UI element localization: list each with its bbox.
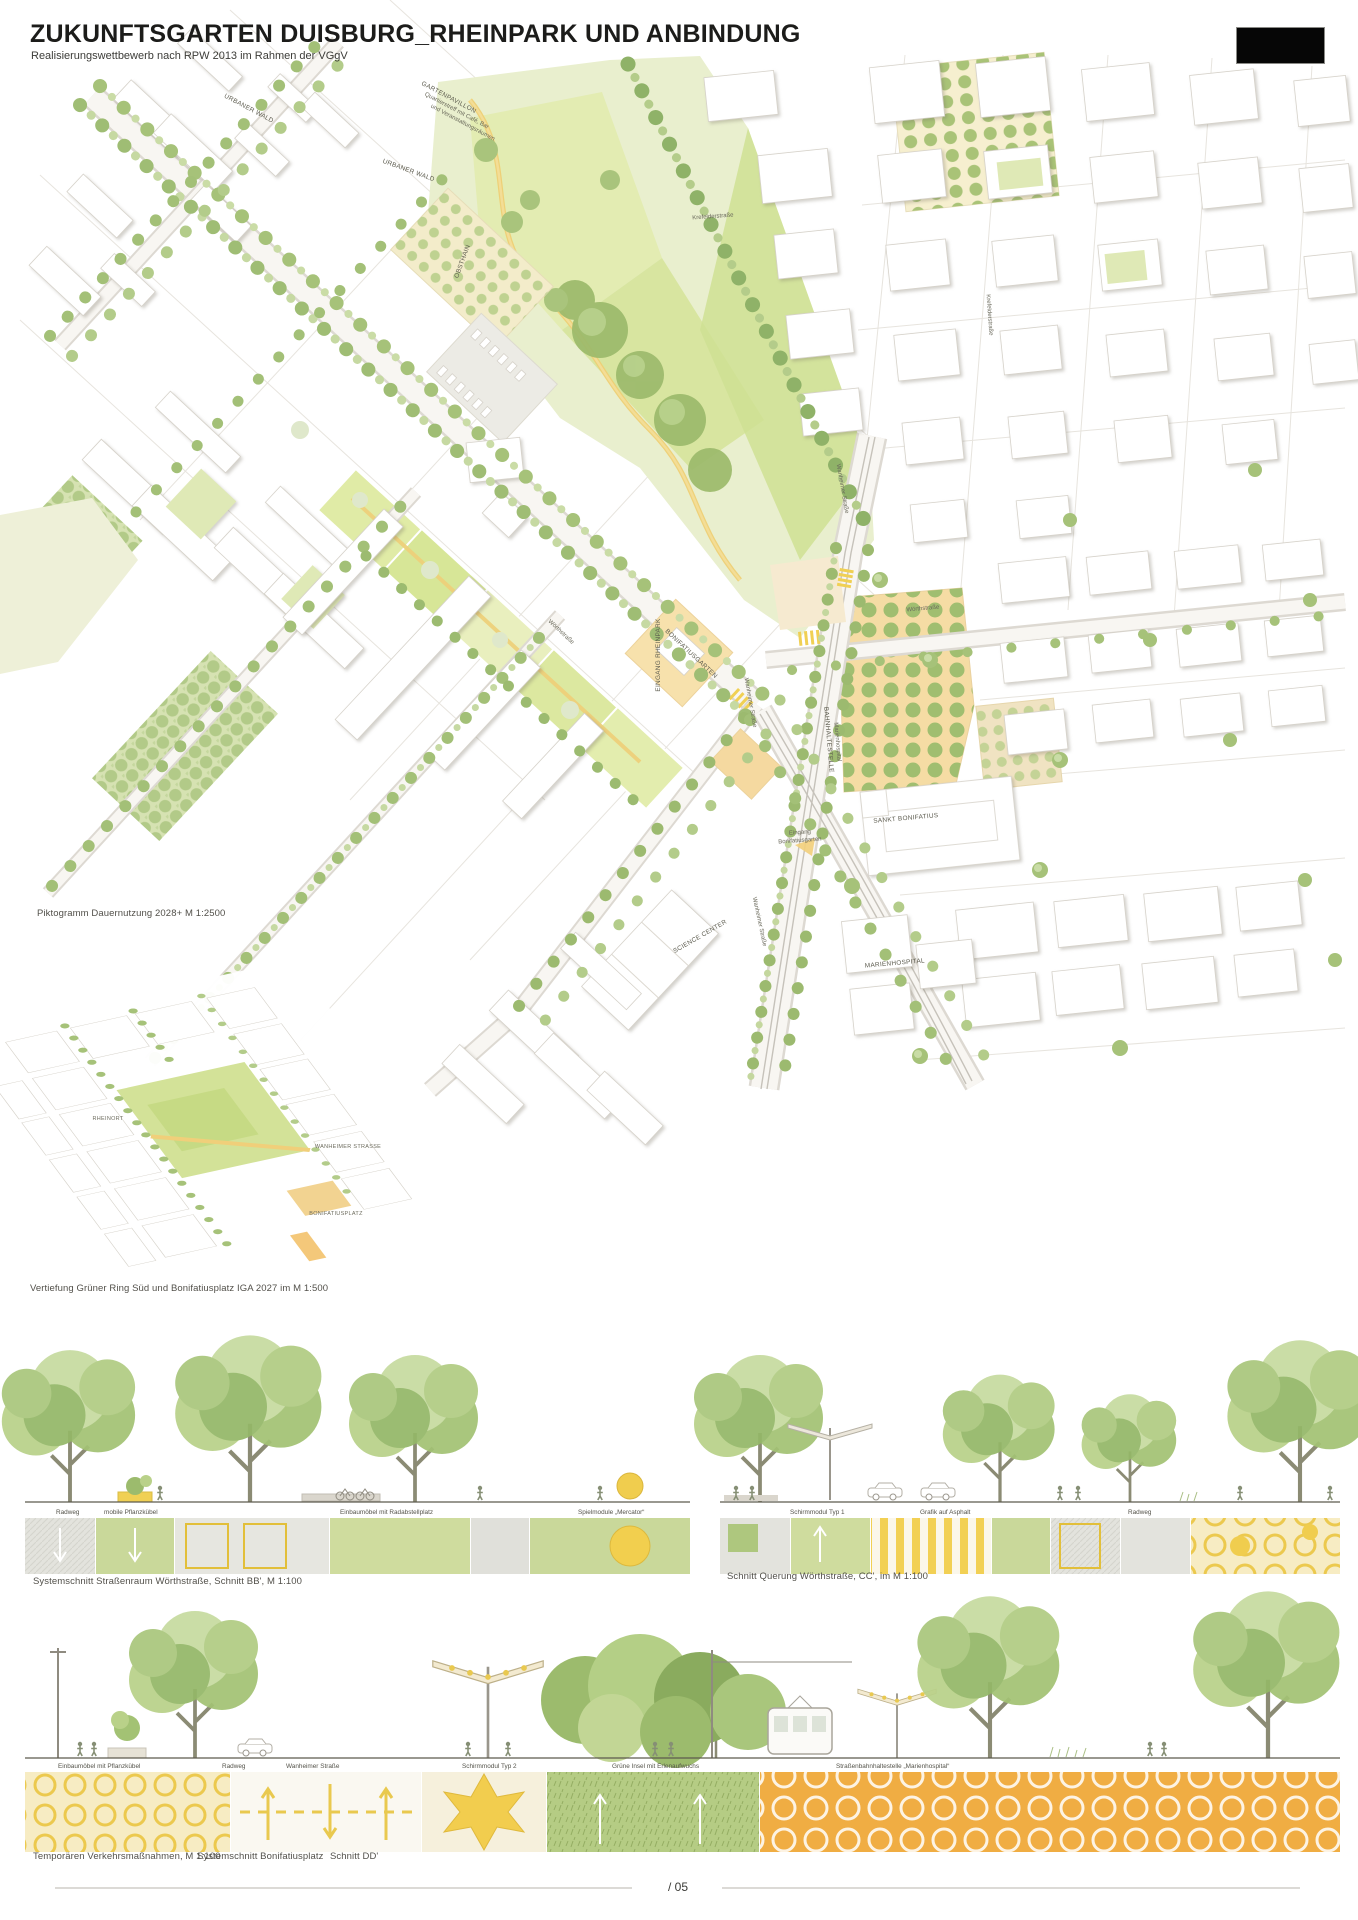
- section-label: Radweg: [1128, 1509, 1152, 1516]
- section-label: Grafik auf Asphalt: [920, 1509, 971, 1516]
- caption-schnitt-dd: Schnitt DD': [330, 1851, 378, 1862]
- landmark-buildings: [442, 776, 1020, 1145]
- section1-labels: Radweg mobile Pflanzkübel Einbaumöbel mi…: [56, 1509, 1152, 1516]
- sankt-bonifatius-church: [860, 776, 1020, 875]
- planter-box: [108, 1748, 146, 1758]
- section-band-2: Einbaumöbel mit Pflanzkübel Radweg Wanhe…: [25, 1591, 1340, 1852]
- section-label: Spielmodule „Mercator“: [578, 1509, 644, 1516]
- page-subtitle: Realisierungswettbewerb nach RPW 2013 im…: [31, 50, 348, 62]
- section2-labels: Einbaumöbel mit Pflanzkübel Radweg Wanhe…: [58, 1763, 949, 1770]
- page-number: / 05: [638, 1880, 718, 1894]
- caption-bonifatiusplatz: Systemschnitt Bonifatiusplatz: [197, 1851, 323, 1862]
- grasses: [1180, 1492, 1197, 1501]
- subsurface-cc: [720, 1518, 1340, 1574]
- section-label: Einbaumöbel mit Pflanzkübel: [58, 1763, 140, 1770]
- caption-schnitt-cc: Schnitt Querung Wörthstraße, CC', im M 1…: [727, 1571, 928, 1582]
- building-rows-woerthstrasse: [998, 539, 1326, 755]
- page-title: ZUKUNFTSGARTEN DUISBURG_RHEINPARK UND AN…: [30, 20, 801, 49]
- caption-vertiefung: Vertiefung Grüner Ring Süd und Bonifatiu…: [30, 1283, 328, 1294]
- street-label: Krefelderstraße: [985, 294, 994, 336]
- piktogramm-axon: RHEINORT WANHEIMER STRASSE BONIFATIUSPLA…: [0, 960, 500, 1319]
- station-plaza: [770, 556, 846, 630]
- board-artwork: URBANER WALD GARTENPAVILLON Quartierstre…: [0, 0, 1358, 1920]
- section-label: Schirmmodul Typ 1: [790, 1509, 845, 1516]
- caption-piktogramm: Piktogramm Dauernutzung 2028+ M 1:2500: [37, 908, 225, 919]
- section-label: Einbaumöbel mit Radabstellplatz: [340, 1509, 433, 1516]
- competition-board: URBANER WALD GARTENPAVILLON Quartierstre…: [0, 0, 1358, 1920]
- green-island: [541, 1634, 786, 1768]
- section-label: Wanheimer Straße: [286, 1763, 340, 1770]
- section-label: Straßenbahnhaltestelle „Marienhospital“: [836, 1763, 949, 1770]
- play-ball: [617, 1473, 643, 1499]
- subsurface-bb: [25, 1518, 690, 1574]
- building-cluster-southeast: [956, 881, 1303, 1028]
- parkgarten-bonifatius: [838, 588, 974, 792]
- subsurface-dd: [25, 1772, 1340, 1852]
- section-label: Grüne Insel mit Erlenaufwuchs: [612, 1763, 699, 1770]
- masterplan: URBANER WALD GARTENPAVILLON Quartierstre…: [0, 0, 1358, 1145]
- entry-number-censor-box: [1236, 27, 1325, 64]
- section-band-1: Radweg mobile Pflanzkübel Einbaumöbel mi…: [2, 1335, 1358, 1574]
- caption-schnitt-bb: Systemschnitt Straßenraum Wörthstraße, S…: [33, 1576, 302, 1587]
- grasses: [1050, 1747, 1086, 1757]
- pikto-label: RHEINORT: [92, 1116, 123, 1122]
- plan-label: URBANER WALD: [382, 158, 436, 183]
- street-label: Wanheimer Straße: [751, 897, 767, 948]
- pikto-label: BONIFATIUSPLATZ: [309, 1211, 363, 1217]
- caption-temporaer: Temporären Verkehrsmaßnahmen, M 1:100: [33, 1851, 220, 1862]
- section-label: Schirmmodul Typ 2: [462, 1763, 517, 1770]
- section-label: Radweg: [222, 1763, 246, 1770]
- pikto-label: WANHEIMER STRASSE: [315, 1144, 381, 1150]
- plan-label: EINGANG RHEINPARK: [655, 618, 662, 692]
- section-label: Radweg: [56, 1509, 80, 1516]
- section-label: mobile Pflanzkübel: [104, 1509, 158, 1516]
